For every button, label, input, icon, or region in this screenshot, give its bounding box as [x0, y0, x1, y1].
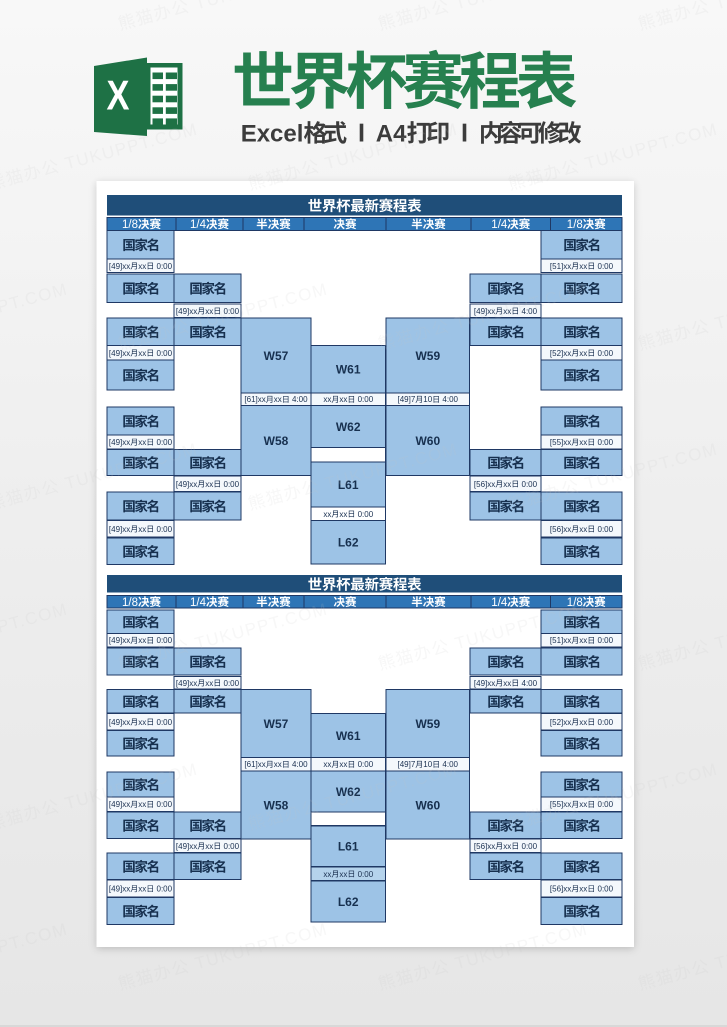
svg-text:[49]xx: [49]xx: [109, 718, 130, 727]
svg-text:W61: W61: [336, 363, 361, 377]
svg-text:[52]xx: [52]xx: [550, 718, 571, 727]
svg-text:1/8: 1/8: [122, 219, 138, 231]
svg-text:0:00: 0:00: [157, 525, 173, 534]
svg-text:xx: xx: [274, 395, 282, 404]
svg-text:[49]xx: [49]xx: [176, 842, 197, 851]
svg-text:1/4: 1/4: [190, 597, 207, 609]
svg-text:4:00: 4:00: [522, 679, 538, 688]
svg-text:0:00: 0:00: [224, 679, 240, 688]
svg-text:xx: xx: [138, 800, 146, 809]
svg-text:xx: xx: [138, 636, 146, 645]
svg-text:0:00: 0:00: [224, 842, 240, 851]
svg-text:[55]xx: [55]xx: [550, 438, 571, 447]
svg-text:[49]xx: [49]xx: [109, 438, 130, 447]
svg-text:xx: xx: [503, 679, 511, 688]
svg-text:0:00: 0:00: [157, 718, 173, 727]
svg-text:xx: xx: [205, 842, 213, 851]
svg-text:0:00: 0:00: [598, 636, 614, 645]
svg-text:1/4: 1/4: [491, 219, 508, 231]
svg-text:xx: xx: [579, 349, 587, 358]
svg-text:[49]xx: [49]xx: [109, 800, 130, 809]
svg-text:4:00: 4:00: [292, 760, 308, 769]
svg-text:[49]xx: [49]xx: [176, 679, 197, 688]
svg-text:W62: W62: [336, 420, 361, 434]
svg-text:0:00: 0:00: [358, 760, 374, 769]
svg-text:[56]xx: [56]xx: [550, 885, 571, 894]
svg-text:xx: xx: [138, 349, 146, 358]
svg-text:10: 10: [423, 395, 432, 404]
svg-text:0:00: 0:00: [598, 349, 614, 358]
svg-text:L62: L62: [338, 895, 359, 909]
svg-text:[49]7: [49]7: [398, 760, 416, 769]
svg-text:W57: W57: [264, 717, 289, 731]
svg-text:0:00: 0:00: [598, 262, 614, 271]
svg-text:[56]xx: [56]xx: [474, 480, 495, 489]
svg-text:[52]xx: [52]xx: [550, 349, 571, 358]
svg-text:4:00: 4:00: [292, 395, 308, 404]
svg-text:0:00: 0:00: [157, 800, 173, 809]
svg-text:[51]xx: [51]xx: [550, 262, 571, 271]
svg-text:xx: xx: [205, 679, 213, 688]
svg-text:xx: xx: [503, 842, 511, 851]
svg-text:W59: W59: [415, 717, 440, 731]
svg-text:xx: xx: [138, 262, 146, 271]
svg-text:0:00: 0:00: [598, 525, 614, 534]
svg-text:4:00: 4:00: [442, 395, 458, 404]
svg-text:0:00: 0:00: [224, 480, 240, 489]
svg-text:1/4: 1/4: [190, 219, 207, 231]
svg-text:0:00: 0:00: [157, 349, 173, 358]
svg-text:xx: xx: [274, 760, 282, 769]
svg-text:xx: xx: [503, 480, 511, 489]
svg-text:[56]xx: [56]xx: [550, 525, 571, 534]
svg-text:W57: W57: [264, 349, 289, 363]
svg-text:[61]xx: [61]xx: [244, 395, 265, 404]
svg-text:0:00: 0:00: [358, 870, 374, 879]
svg-text:[49]xx: [49]xx: [109, 636, 130, 645]
svg-text:xx: xx: [339, 760, 347, 769]
svg-text:1/8: 1/8: [567, 219, 583, 231]
svg-text:xx: xx: [579, 525, 587, 534]
svg-text:xx: xx: [579, 885, 587, 894]
svg-text:[56]xx: [56]xx: [474, 842, 495, 851]
svg-text:[49]xx: [49]xx: [474, 679, 495, 688]
svg-text:xx: xx: [579, 262, 587, 271]
svg-text:[49]xx: [49]xx: [176, 480, 197, 489]
svg-text:xx: xx: [138, 718, 146, 727]
svg-text:W61: W61: [336, 729, 361, 743]
svg-text:[49]xx: [49]xx: [109, 349, 130, 358]
svg-text:X: X: [107, 72, 130, 119]
svg-text:[49]7: [49]7: [398, 395, 416, 404]
svg-text:[49]xx: [49]xx: [109, 262, 130, 271]
svg-text:[61]xx: [61]xx: [244, 760, 265, 769]
svg-text:0:00: 0:00: [598, 718, 614, 727]
svg-text:xx: xx: [579, 438, 587, 447]
svg-text:xx: xx: [323, 870, 331, 879]
svg-text:0:00: 0:00: [157, 262, 173, 271]
svg-text:xx: xx: [579, 636, 587, 645]
svg-text:0:00: 0:00: [522, 480, 538, 489]
svg-text:xx: xx: [205, 480, 213, 489]
svg-text:0:00: 0:00: [358, 395, 374, 404]
svg-text:W58: W58: [264, 434, 289, 448]
svg-text:W59: W59: [415, 349, 440, 363]
svg-text:[51]xx: [51]xx: [550, 636, 571, 645]
svg-text:0:00: 0:00: [598, 438, 614, 447]
svg-text:xx: xx: [138, 885, 146, 894]
svg-text:xx: xx: [339, 510, 347, 519]
svg-text:0:00: 0:00: [358, 510, 374, 519]
svg-text:xx: xx: [323, 510, 331, 519]
svg-text:xx: xx: [138, 438, 146, 447]
svg-text:xx: xx: [579, 718, 587, 727]
svg-text:L62: L62: [338, 536, 359, 550]
svg-text:[49]xx: [49]xx: [109, 885, 130, 894]
svg-text:0:00: 0:00: [522, 842, 538, 851]
svg-text:1/8: 1/8: [122, 597, 138, 609]
svg-text:xx: xx: [323, 760, 331, 769]
svg-text:1/4: 1/4: [491, 597, 508, 609]
svg-text:xx: xx: [339, 870, 347, 879]
svg-text:xx: xx: [138, 525, 146, 534]
svg-text:L61: L61: [338, 840, 359, 854]
svg-text:xx: xx: [323, 395, 331, 404]
svg-text:0:00: 0:00: [157, 885, 173, 894]
svg-text:0:00: 0:00: [598, 885, 614, 894]
svg-text:W60: W60: [415, 798, 440, 812]
svg-text:[49]xx: [49]xx: [109, 525, 130, 534]
svg-text:xx: xx: [339, 395, 347, 404]
svg-text:0:00: 0:00: [157, 636, 173, 645]
svg-text:Excel: Excel: [241, 121, 304, 148]
